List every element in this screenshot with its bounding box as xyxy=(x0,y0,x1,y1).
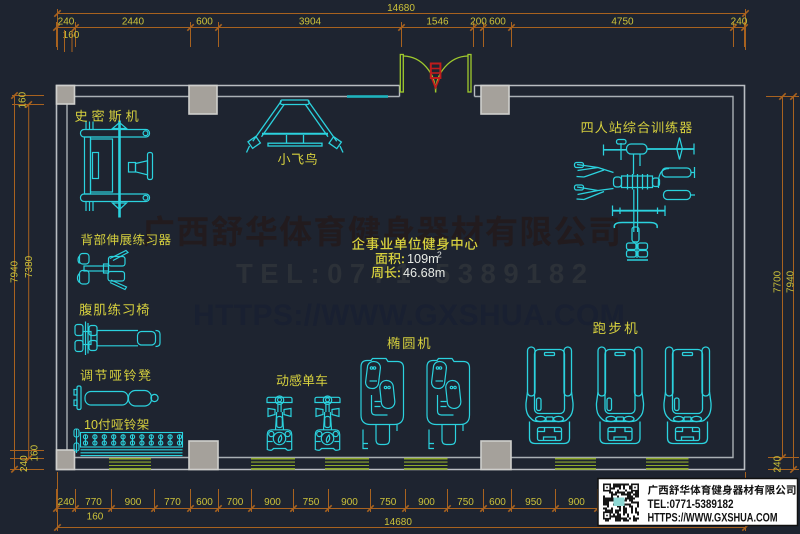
svg-text:109m: 109m xyxy=(407,252,439,266)
svg-text:7700: 7700 xyxy=(773,270,784,293)
svg-text:240: 240 xyxy=(58,497,75,508)
svg-text:240: 240 xyxy=(19,455,30,472)
svg-text:900: 900 xyxy=(125,497,142,508)
svg-text:7380: 7380 xyxy=(24,255,35,278)
svg-text:HTTPS://WWW.GXSHUA.COM: HTTPS://WWW.GXSHUA.COM xyxy=(648,510,778,524)
svg-text:700: 700 xyxy=(227,497,244,508)
svg-text:TEL:0771-5389182: TEL:0771-5389182 xyxy=(648,497,734,511)
svg-text:240: 240 xyxy=(773,455,784,472)
svg-text:900: 900 xyxy=(264,497,281,508)
svg-text:240: 240 xyxy=(58,17,75,28)
svg-text:750: 750 xyxy=(303,497,320,508)
svg-text:1546: 1546 xyxy=(426,17,449,28)
svg-text:2440: 2440 xyxy=(122,17,145,28)
svg-text:900: 900 xyxy=(341,497,358,508)
svg-text:770: 770 xyxy=(164,497,181,508)
svg-text:600: 600 xyxy=(196,17,213,28)
svg-text:14680: 14680 xyxy=(384,517,412,528)
svg-text:160: 160 xyxy=(30,444,41,461)
svg-text:240: 240 xyxy=(731,17,748,28)
svg-text:2: 2 xyxy=(437,250,442,260)
svg-text:160: 160 xyxy=(18,91,29,108)
svg-text:10: 10 xyxy=(84,418,98,432)
svg-text:770: 770 xyxy=(85,497,102,508)
svg-text:7940: 7940 xyxy=(10,260,21,283)
svg-text:7940: 7940 xyxy=(786,270,797,293)
svg-text:600: 600 xyxy=(196,497,213,508)
svg-text:200: 200 xyxy=(470,17,487,28)
svg-text:600: 600 xyxy=(489,497,506,508)
svg-text:750: 750 xyxy=(457,497,474,508)
svg-text:160: 160 xyxy=(87,512,104,523)
svg-text:HTTPS://WWW.GXSHUA.COM: HTTPS://WWW.GXSHUA.COM xyxy=(193,299,625,332)
svg-text:600: 600 xyxy=(489,17,506,28)
svg-text:3904: 3904 xyxy=(299,17,322,28)
svg-text:900: 900 xyxy=(568,497,585,508)
svg-text:46.68m: 46.68m xyxy=(403,266,445,280)
svg-text:160: 160 xyxy=(63,30,80,41)
svg-text:750: 750 xyxy=(380,497,397,508)
svg-text:900: 900 xyxy=(418,497,435,508)
svg-text:14680: 14680 xyxy=(387,3,415,14)
svg-text:4750: 4750 xyxy=(611,17,634,28)
svg-text:950: 950 xyxy=(525,497,542,508)
